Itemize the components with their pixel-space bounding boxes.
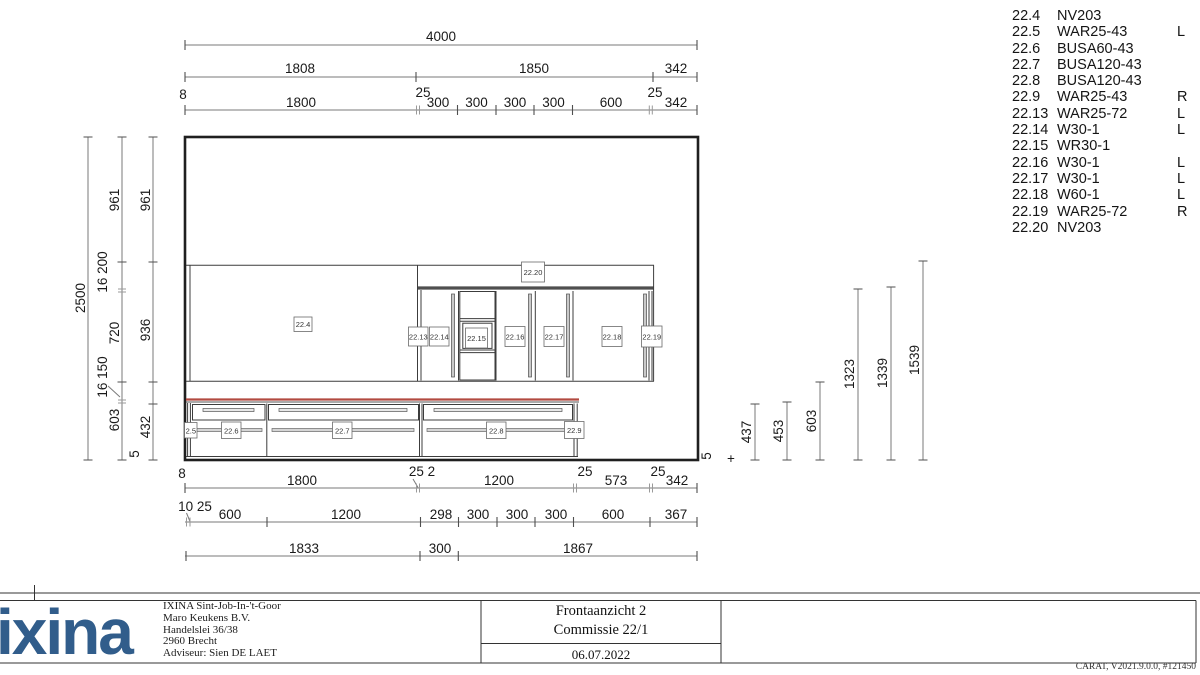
part-code: 22.15	[1012, 138, 1057, 154]
part-name: WR30-1	[1057, 138, 1177, 154]
part-name: BUSA120-43	[1057, 57, 1177, 73]
dim-text: 432	[138, 416, 153, 439]
drawing-date: 06.07.2022	[481, 647, 721, 663]
dim-text: 961	[107, 189, 122, 212]
niche-panel	[186, 265, 654, 381]
dim-text: 300	[427, 95, 450, 110]
dim-bottom: 8 25 2 25 25 1800 1200 573 342 10 25 600…	[178, 464, 697, 561]
part-code: 22.8	[1012, 73, 1057, 89]
part-code: 22.9	[1012, 89, 1057, 105]
unit-label-22-15: 22.15	[466, 328, 488, 348]
address-line: Adviseur: Sien DE LAET	[163, 648, 281, 660]
parts-list-row: 22.7BUSA120-43	[1012, 57, 1195, 73]
dim-text: 1539	[907, 345, 922, 375]
part-side: L	[1177, 122, 1195, 138]
unit-label-22-18: 22.18	[602, 327, 622, 347]
dim-text: 300	[465, 95, 488, 110]
parts-list-row: 22.17W30-1L	[1012, 171, 1195, 187]
dim-text: 720	[107, 322, 122, 345]
dim-text: 1867	[563, 541, 593, 556]
dim-text: 300	[545, 507, 568, 522]
part-side	[1177, 138, 1195, 154]
unit-label-22-5: 2.5	[185, 423, 198, 439]
parts-list-row: 22.4NV203	[1012, 8, 1195, 24]
part-name: WAR25-43	[1057, 24, 1177, 40]
unit-label-text: 22.17	[545, 333, 564, 342]
part-code: 22.5	[1012, 24, 1057, 40]
parts-list-row: 22.15WR30-1	[1012, 138, 1195, 154]
dim-left: 2500 961 16 200 720 603 5 961 936 16 150…	[73, 137, 158, 460]
dim-text: 300	[506, 507, 529, 522]
cad-canvas: 22.4 22.20 22.13 22.14 22.15 22.16 22.17…	[0, 0, 1200, 675]
part-name: W60-1	[1057, 187, 1177, 203]
drawer-front	[424, 405, 573, 421]
dim-text: 300	[504, 95, 527, 110]
part-side: L	[1177, 24, 1195, 40]
part-name: W30-1	[1057, 155, 1177, 171]
commission-label: Commissie 22/1	[481, 622, 721, 639]
address-line: Maro Keukens B.V.	[163, 613, 281, 625]
unit-label-22-20: 22.20	[522, 262, 545, 282]
part-side: L	[1177, 187, 1195, 203]
part-side: L	[1177, 171, 1195, 187]
dim-text: 4000	[426, 29, 456, 44]
drawer-front	[269, 405, 419, 421]
dim-text: 1808	[285, 61, 315, 76]
unit-label-22-6: 22.6	[222, 422, 242, 439]
datum-plus-mark: +	[727, 451, 735, 466]
part-name: WAR25-72	[1057, 204, 1177, 220]
parts-list-row: 22.6BUSA60-43	[1012, 41, 1195, 57]
dim-text: 600	[600, 95, 623, 110]
dim-top: 4000 1808 1850 342 8 25 25 1800 300 300 …	[179, 29, 697, 115]
part-code: 22.19	[1012, 204, 1057, 220]
dim-text: 25	[650, 464, 665, 479]
dim-text: 25 2	[409, 464, 435, 479]
part-name: NV203	[1057, 220, 1177, 236]
unit-label-text: 22.6	[224, 427, 239, 436]
dim-text: 342	[665, 61, 688, 76]
ixina-logo: ixina	[0, 595, 132, 669]
dim-text: 1339	[875, 358, 890, 388]
dim-text: 342	[666, 473, 689, 488]
handle-strip	[452, 294, 455, 377]
dim-text: 573	[605, 473, 628, 488]
handle-strip	[529, 294, 532, 377]
drawing-title: Frontaanzicht 2	[481, 603, 721, 620]
unit-label-text: 22.8	[489, 427, 504, 436]
part-side	[1177, 220, 1195, 236]
dim-text: 1323	[842, 359, 857, 389]
dim-text: 603	[804, 410, 819, 433]
unit-label-22-19: 22.19	[642, 326, 663, 347]
unit-label-text: 22.7	[335, 427, 350, 436]
parts-list-row: 22.9WAR25-43R	[1012, 89, 1195, 105]
dim-text: 1800	[287, 473, 317, 488]
part-code: 22.13	[1012, 106, 1057, 122]
dealer-address: IXINA Sint-Job-In-'t-Goor Maro Keukens B…	[163, 601, 281, 660]
unit-label-22-7: 22.7	[333, 422, 353, 439]
unit-label-text: 22.4	[296, 320, 311, 329]
part-name: BUSA120-43	[1057, 73, 1177, 89]
dim-text: 936	[138, 319, 153, 342]
unit-label-text: 22.13	[409, 333, 428, 342]
parts-list-row: 22.13WAR25-72L	[1012, 106, 1195, 122]
dim-text: 1800	[286, 95, 316, 110]
drawer-front	[193, 405, 266, 421]
unit-label-text: 22.15	[467, 334, 486, 343]
software-version-stamp: CARAT, V2021.9.0.0, #121450	[996, 662, 1196, 672]
dim-text: 1833	[289, 541, 319, 556]
unit-label-22-14: 22.14	[430, 327, 450, 346]
dim-text: 10 25	[178, 499, 212, 514]
dim-text: 342	[665, 95, 688, 110]
part-name: NV203	[1057, 8, 1177, 24]
unit-label-22-8: 22.8	[487, 422, 507, 439]
dim-text: 16 150	[95, 356, 110, 397]
part-name: BUSA60-43	[1057, 41, 1177, 57]
part-name: WAR25-43	[1057, 89, 1177, 105]
unit-label-22-4: 22.4	[294, 317, 312, 332]
dim-text: 300	[467, 507, 490, 522]
dim-text: 961	[138, 189, 153, 212]
part-side: R	[1177, 89, 1195, 105]
part-name: W30-1	[1057, 122, 1177, 138]
part-code: 22.14	[1012, 122, 1057, 138]
dim-text: 367	[665, 507, 688, 522]
dim-text: 437	[739, 421, 754, 444]
unit-label-text: 22.14	[430, 333, 449, 342]
part-side: L	[1177, 106, 1195, 122]
dim-text: 25	[577, 464, 592, 479]
unit-label-text: 22.19	[642, 333, 661, 342]
title-block-center: Frontaanzicht 2 Commissie 22/1 06.07.202…	[481, 600, 721, 663]
dim-text: 5	[699, 452, 714, 460]
parts-list-row: 22.19WAR25-72R	[1012, 204, 1195, 220]
unit-label-text: 2.5	[186, 427, 196, 436]
part-code: 22.17	[1012, 171, 1057, 187]
dim-right: 437 453 603 1323 1339 1539 + 5	[699, 261, 928, 466]
parts-list-row: 22.14W30-1L	[1012, 122, 1195, 138]
dim-text: 2500	[73, 283, 88, 313]
part-code: 22.18	[1012, 187, 1057, 203]
part-code: 22.7	[1012, 57, 1057, 73]
countertop	[186, 400, 579, 403]
base-cabinets	[186, 403, 578, 457]
dim-text: 600	[602, 507, 625, 522]
dim-text: 453	[771, 420, 786, 443]
parts-list-row: 22.20NV203	[1012, 220, 1195, 236]
drawer-handle	[203, 409, 254, 412]
part-code: 22.4	[1012, 8, 1057, 24]
unit-label-22-13: 22.13	[409, 327, 429, 346]
parts-list: 22.4NV203 22.5WAR25-43L 22.6BUSA60-43 22…	[1012, 8, 1195, 236]
part-side	[1177, 41, 1195, 57]
parts-list-row: 22.16W30-1L	[1012, 155, 1195, 171]
dim-text: 298	[430, 507, 453, 522]
part-code: 22.6	[1012, 41, 1057, 57]
unit-label-text: 22.16	[506, 333, 525, 342]
part-name: WAR25-72	[1057, 106, 1177, 122]
dim-text: 1850	[519, 61, 549, 76]
unit-label-22-16: 22.16	[505, 327, 525, 347]
unit-label-22-17: 22.17	[544, 327, 564, 347]
part-name: W30-1	[1057, 171, 1177, 187]
dim-text: 300	[542, 95, 565, 110]
dim-text: 8	[179, 87, 187, 102]
part-code: 22.16	[1012, 155, 1057, 171]
dim-text: 5	[127, 450, 142, 458]
handle-strip	[567, 294, 570, 377]
part-side	[1177, 73, 1195, 89]
dim-text: 25	[647, 85, 662, 100]
parts-list-row: 22.5WAR25-43L	[1012, 24, 1195, 40]
part-side	[1177, 57, 1195, 73]
dim-text: 16 200	[95, 251, 110, 292]
drawer-handle	[279, 409, 407, 412]
parts-list-row: 22.18W60-1L	[1012, 187, 1195, 203]
dim-text: 1200	[484, 473, 514, 488]
parts-list-row: 22.8BUSA120-43	[1012, 73, 1195, 89]
unit-label-22-9: 22.9	[565, 422, 585, 439]
part-side	[1177, 8, 1195, 24]
dim-text: 8	[178, 466, 186, 481]
drawer-handle	[434, 409, 562, 412]
wall-cabinets	[417, 265, 654, 381]
part-side: L	[1177, 155, 1195, 171]
unit-label-text: 22.20	[524, 268, 543, 277]
dim-text: 300	[429, 541, 452, 556]
part-code: 22.20	[1012, 220, 1057, 236]
dim-text: 600	[219, 507, 242, 522]
unit-label-text: 22.9	[567, 426, 582, 435]
part-side: R	[1177, 204, 1195, 220]
dim-text: 603	[107, 409, 122, 432]
unit-label-text: 22.18	[603, 333, 622, 342]
dim-text: 1200	[331, 507, 361, 522]
